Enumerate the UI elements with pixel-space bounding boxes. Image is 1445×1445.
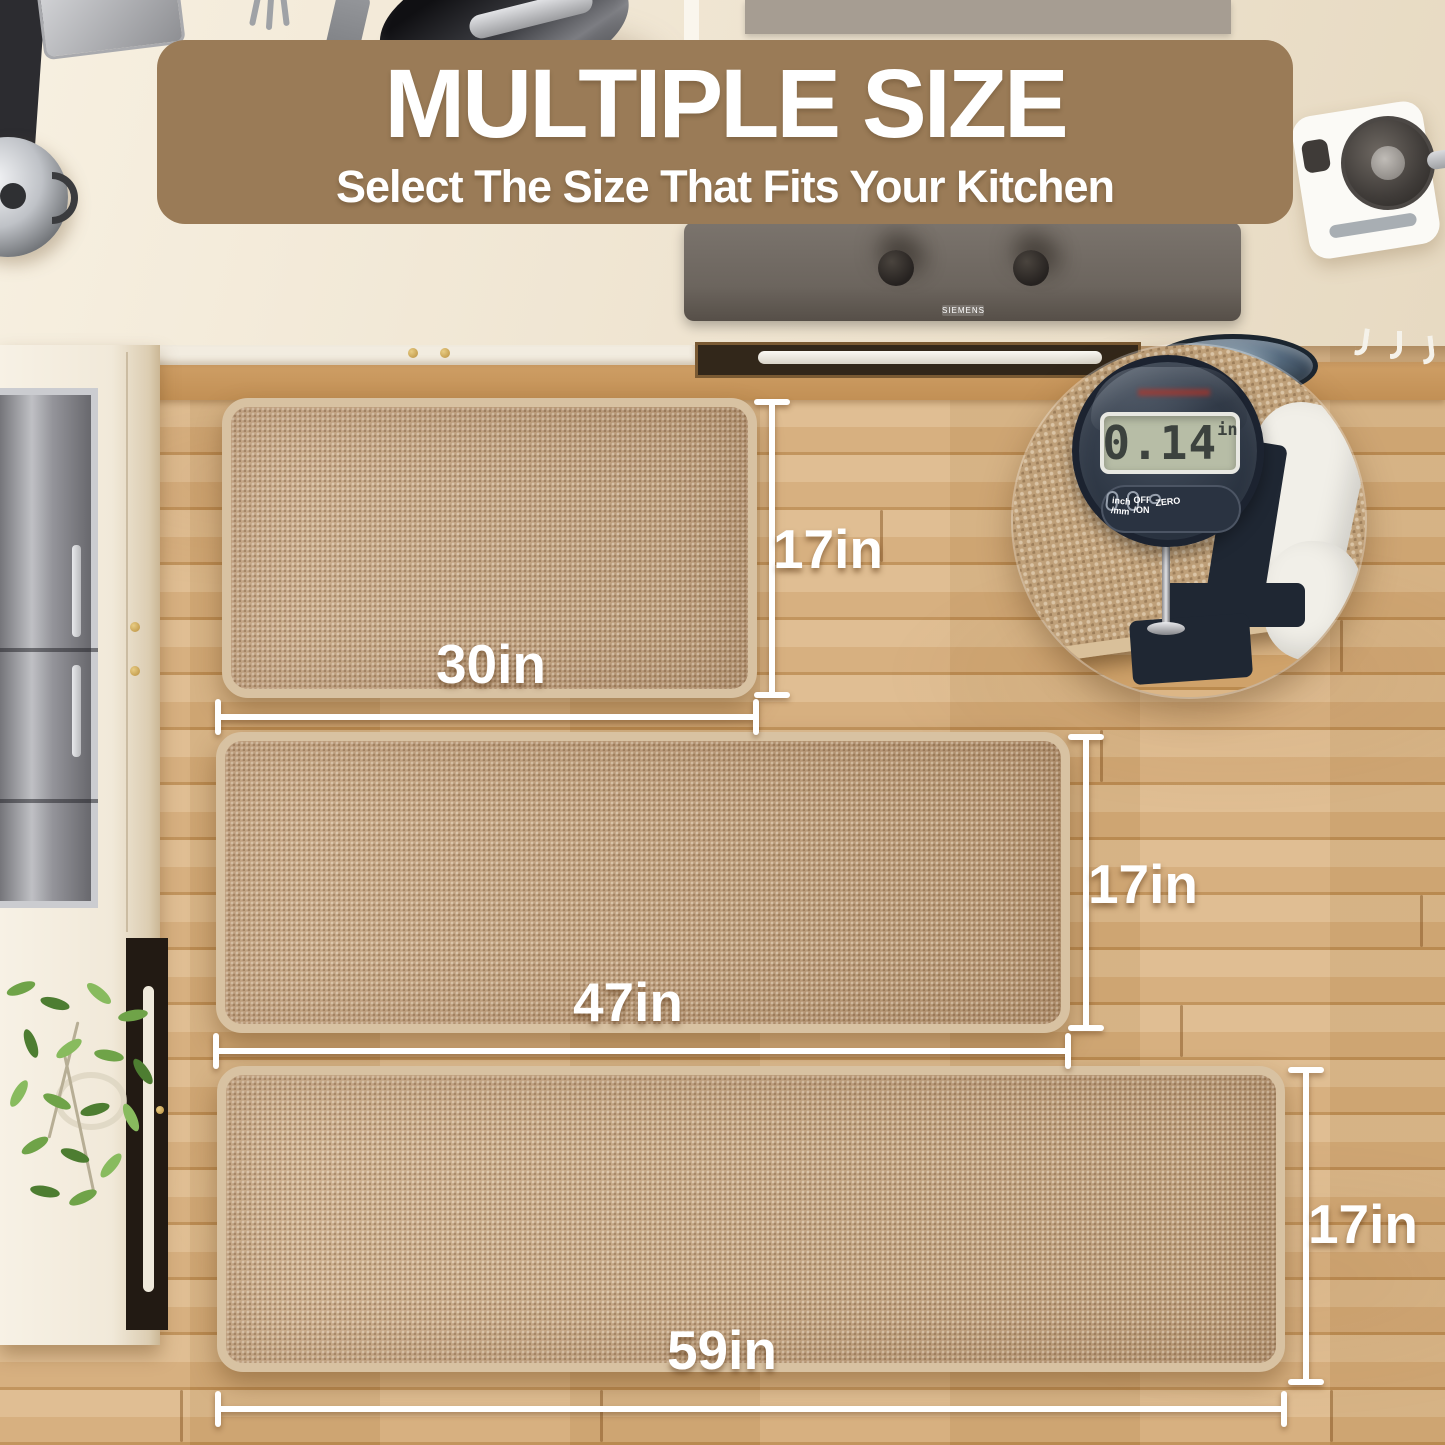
dimension-line-width-mat-30 (218, 714, 756, 720)
steel-door-split (0, 799, 98, 803)
cooktop-brand-label: SIEMENS (942, 305, 984, 316)
island-knob (130, 666, 140, 676)
mat-59-height-label: 17in (1308, 1192, 1418, 1256)
oven-knob (156, 1106, 164, 1114)
cabinet-knob (440, 348, 450, 358)
gauge-brand-mark (1138, 389, 1210, 396)
dimension-line-width-mat-59 (218, 1406, 1284, 1412)
mat-59-width-label: 59in (667, 1318, 777, 1382)
mat-30-width-label: 30in (436, 632, 546, 696)
gauge-button-off-on-line2: /ON (1133, 506, 1149, 516)
gauge-button-zero: ZERO (1148, 493, 1161, 504)
floor-plank-seam (600, 1390, 603, 1442)
cabinet-door-line (126, 352, 128, 932)
cooktop-knob (1013, 250, 1049, 286)
under-counter-cabinets (150, 345, 695, 365)
floor-plank-seam (180, 1390, 183, 1442)
oven-handle (143, 986, 154, 1292)
floor-plank-seam (1420, 895, 1423, 947)
gauge-spindle (1162, 541, 1170, 629)
mat-47-height-label: 17in (1088, 852, 1198, 916)
cooktop-knob (878, 250, 914, 286)
gauge-button-inch-mm-line2: /mm (1110, 506, 1129, 518)
mat-30-height-label: 17in (773, 517, 883, 581)
mixer-hub (1371, 146, 1405, 180)
gauge-reading: 0.14 (1102, 420, 1217, 466)
range-hood (745, 0, 1231, 34)
gauge-anvil (1147, 622, 1185, 635)
steel-door-split (0, 648, 98, 652)
kettle-lid-knob (0, 183, 26, 209)
steel-handle (72, 665, 81, 757)
banner-title: MULTIPLE SIZE (384, 55, 1065, 154)
banner: MULTIPLE SIZE Select The Size That Fits … (157, 40, 1293, 224)
gauge-button-inch-mm: inch /mm (1105, 490, 1119, 511)
steel-handle (72, 545, 81, 637)
mat-47-width-label: 47in (573, 970, 683, 1034)
dimension-line-width-mat-47 (216, 1048, 1068, 1054)
mixer-spout (1301, 138, 1332, 174)
floor-plank-seam (1330, 1390, 1333, 1442)
product-size-infographic: SIEMENS (0, 0, 1445, 1445)
gauge-button-band: inch /mm OFF /ON ZERO (1101, 485, 1241, 533)
thickness-inset-circle: 0.14 in inch /mm OFF /ON ZERO (1013, 345, 1365, 697)
island-knob (130, 622, 140, 632)
steel-appliance (0, 388, 98, 908)
gauge-button-zero-line1: ZERO (1155, 496, 1181, 508)
cabinet-knob (408, 348, 418, 358)
gauge-lcd: 0.14 in (1100, 412, 1240, 474)
banner-subtitle: Select The Size That Fits Your Kitchen (336, 161, 1114, 213)
floor-plank-seam (1180, 1005, 1183, 1057)
clamp-foot (1129, 613, 1253, 685)
gauge-unit: in (1217, 420, 1237, 440)
